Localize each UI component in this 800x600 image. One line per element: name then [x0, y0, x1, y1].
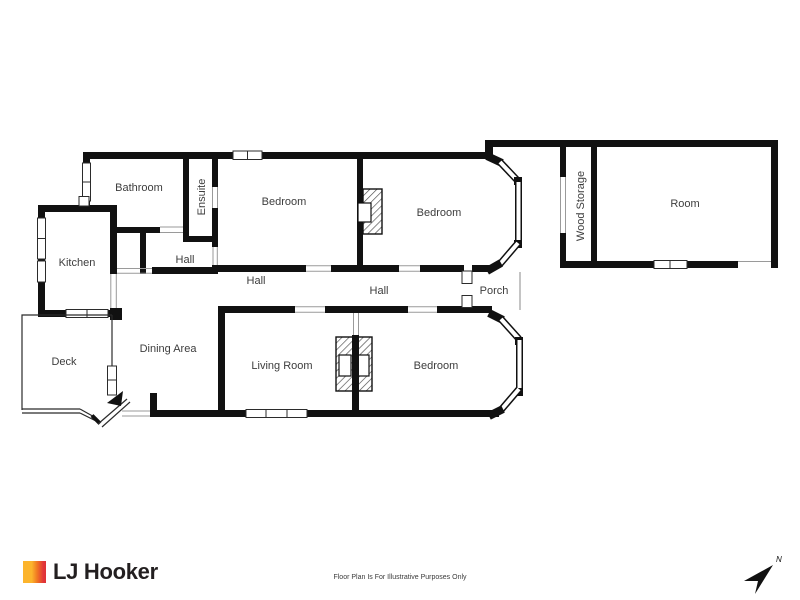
fireplace-living-room	[336, 335, 372, 393]
room-label-porch: Porch	[480, 285, 509, 297]
room-label-hall-middle: Hall	[247, 275, 266, 287]
disclaimer-text: Floor Plan Is For Illustrative Purposes …	[0, 574, 800, 581]
room-label-dining-area: Dining Area	[140, 343, 198, 355]
room-label-deck: Deck	[51, 356, 77, 368]
porch-post-marker	[462, 271, 472, 284]
floor-plan: Bathroom Ensuite Bedroom Bedroom Wood St…	[0, 0, 800, 600]
room-label-ensuite: Ensuite	[196, 179, 208, 216]
room-label-bedroom-left: Bedroom	[262, 196, 307, 208]
room-label-room: Room	[670, 198, 699, 210]
room-label-kitchen: Kitchen	[59, 257, 96, 269]
bay-window-bottom	[489, 313, 523, 416]
room-label-hall-upper: Hall	[176, 254, 195, 266]
room-label-bedroom-right: Bedroom	[417, 207, 462, 219]
room-label-wood-storage: Wood Storage	[575, 171, 587, 241]
deck-steps	[102, 402, 130, 427]
floor-plan-page: Bathroom Ensuite Bedroom Bedroom Wood St…	[0, 0, 800, 600]
room-label-living-room: Living Room	[251, 360, 312, 372]
room-label-bathroom: Bathroom	[115, 182, 163, 194]
porch-post-marker	[462, 296, 472, 308]
room-label-bedroom-bottom: Bedroom	[414, 360, 459, 372]
footer: LJ Hooker Floor Plan Is For Illustrative…	[0, 550, 800, 600]
room-label-hall-lower: Hall	[370, 285, 389, 297]
bay-window-top	[487, 156, 522, 271]
